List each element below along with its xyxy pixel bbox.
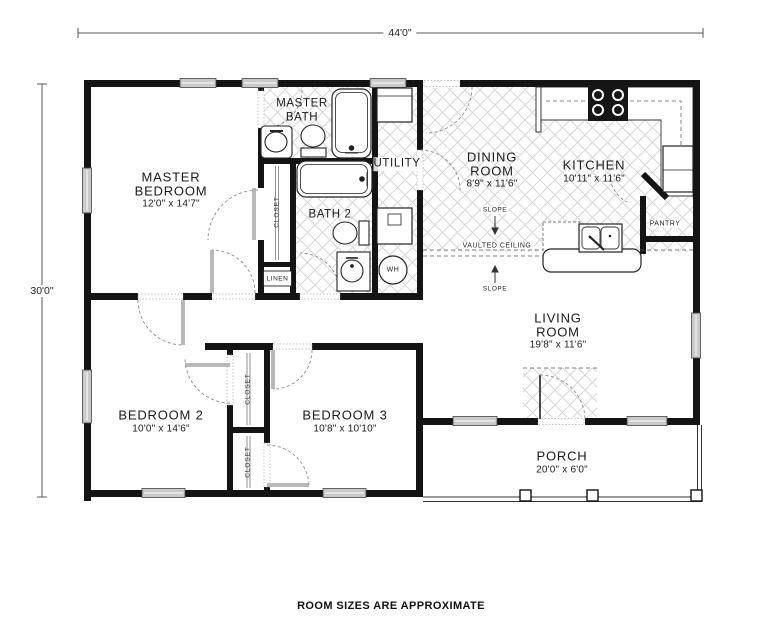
- label-linen: LINEN: [267, 275, 289, 282]
- label-master-bath: MASTER BATH: [276, 98, 328, 125]
- label-bath-2: BATH 2: [308, 208, 351, 222]
- label-kitchen: KITCHEN 10'11" x 11'6": [563, 158, 626, 184]
- label-closet-bedroom2: CLOSET: [245, 373, 252, 404]
- dining-kitchen-wall-stub: [536, 87, 541, 132]
- bath2-tub-icon: [297, 161, 372, 197]
- label-master-bedroom: MASTER BEDROOM 12'0" x 14'7": [135, 171, 208, 210]
- label-dining-room: DINING ROOM 8'9" x 11'6": [467, 151, 518, 190]
- dimension-width-label: 44'0": [383, 27, 416, 39]
- bath2-sink-icon: [337, 252, 370, 291]
- door-leaves: [181, 188, 309, 487]
- label-slope-dining: SLOPE: [481, 207, 509, 214]
- label-bedroom-3: BEDROOM 3 10'8" x 10'10": [302, 408, 387, 434]
- footer-note: ROOM SIZES ARE APPROXIMATE: [297, 600, 485, 612]
- label-closet-master: CLOSET: [274, 196, 281, 227]
- label-vaulted-ceiling: VAULTED CEILING: [461, 243, 534, 250]
- label-utility: UTILITY: [373, 157, 420, 171]
- label-bedroom-2: BEDROOM 2 10'0" x 14'6": [118, 408, 203, 434]
- dryer-icon: [377, 208, 412, 244]
- stove-icon: [588, 84, 628, 121]
- master-bath-toilet-icon: [301, 125, 326, 157]
- label-pantry: PANTRY: [648, 221, 683, 228]
- label-slope-living: SLOPE: [483, 286, 507, 293]
- label-porch: PORCH 20'0" x 6'0": [536, 449, 588, 475]
- slope-arrow-up-icon: [492, 266, 498, 283]
- porch-posts: [520, 490, 702, 501]
- master-bath-sink-icon: [261, 126, 292, 158]
- label-water-heater: WH: [387, 267, 400, 274]
- master-bath-tub-icon: [332, 89, 371, 158]
- kitchen-sink-icon: [579, 224, 622, 252]
- washer-icon: [377, 88, 412, 122]
- floor-plan: 44'0" 30'0" MASTER BEDROOM 12'0" x 14'7"…: [0, 0, 779, 630]
- label-living-room: LIVING ROOM 19'8" x 11'6": [530, 312, 587, 351]
- dimension-height-label: 30'0": [25, 285, 58, 297]
- floor-plan-drawing: [0, 0, 779, 630]
- bath2-toilet-icon: [333, 221, 369, 245]
- refrigerator-icon: [663, 146, 693, 192]
- label-closet-bedroom3: CLOSET: [245, 446, 252, 477]
